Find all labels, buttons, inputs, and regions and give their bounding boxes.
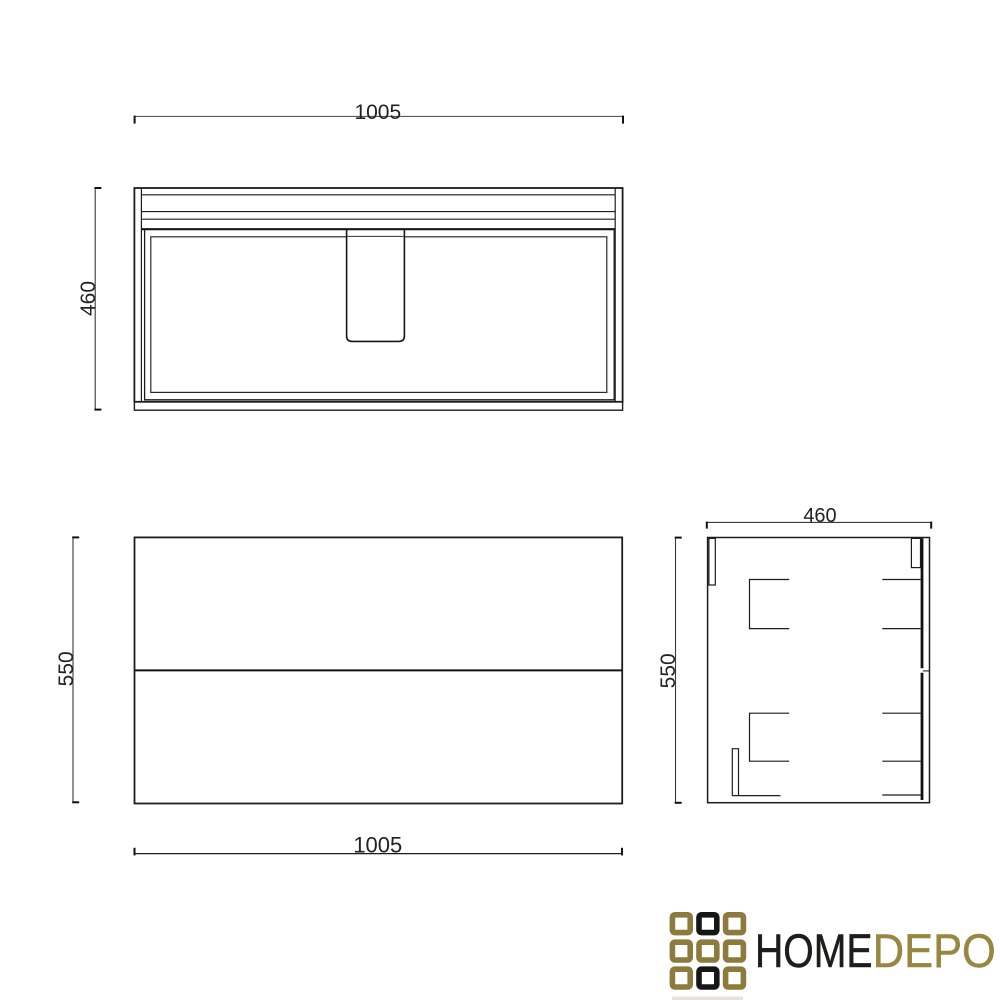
svg-text:HOME: HOME: [755, 924, 873, 977]
svg-text:DEPO: DEPO: [873, 924, 996, 977]
svg-text:460: 460: [77, 281, 100, 316]
svg-text:1005: 1005: [354, 101, 401, 124]
svg-text:460: 460: [803, 505, 836, 527]
svg-text:1005: 1005: [353, 833, 402, 858]
svg-text:550: 550: [55, 651, 78, 686]
svg-text:550: 550: [657, 653, 680, 688]
